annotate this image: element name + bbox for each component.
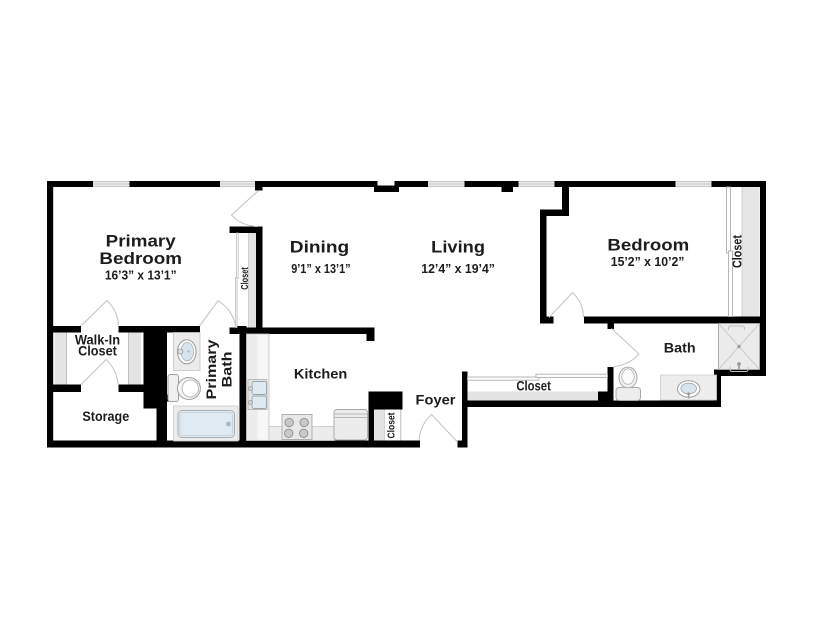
svg-text:Closet: Closet (78, 343, 117, 358)
svg-text:9’1” x 13’1”: 9’1” x 13’1” (291, 261, 350, 276)
svg-text:Primary: Primary (204, 339, 219, 400)
svg-text:Dining: Dining (290, 238, 349, 256)
svg-text:Bath: Bath (220, 352, 235, 388)
svg-text:Closet: Closet (387, 412, 398, 439)
svg-text:Living: Living (431, 238, 485, 256)
svg-text:Closet: Closet (516, 379, 551, 394)
svg-text:Closet: Closet (729, 234, 744, 268)
svg-text:Bedroom: Bedroom (607, 237, 689, 255)
svg-text:Primary: Primary (106, 233, 177, 251)
svg-text:Foyer: Foyer (416, 393, 457, 408)
svg-text:Kitchen: Kitchen (294, 366, 348, 381)
svg-text:16’3” x 13’1”: 16’3” x 13’1” (105, 268, 177, 283)
svg-text:12’4” x 19’4”: 12’4” x 19’4” (421, 261, 495, 276)
svg-text:15’2” x 10’2”: 15’2” x 10’2” (611, 254, 685, 269)
svg-text:Bath: Bath (664, 341, 696, 356)
svg-text:Bedroom: Bedroom (99, 250, 182, 268)
svg-text:Storage: Storage (82, 409, 129, 424)
svg-text:Closet: Closet (239, 267, 251, 290)
